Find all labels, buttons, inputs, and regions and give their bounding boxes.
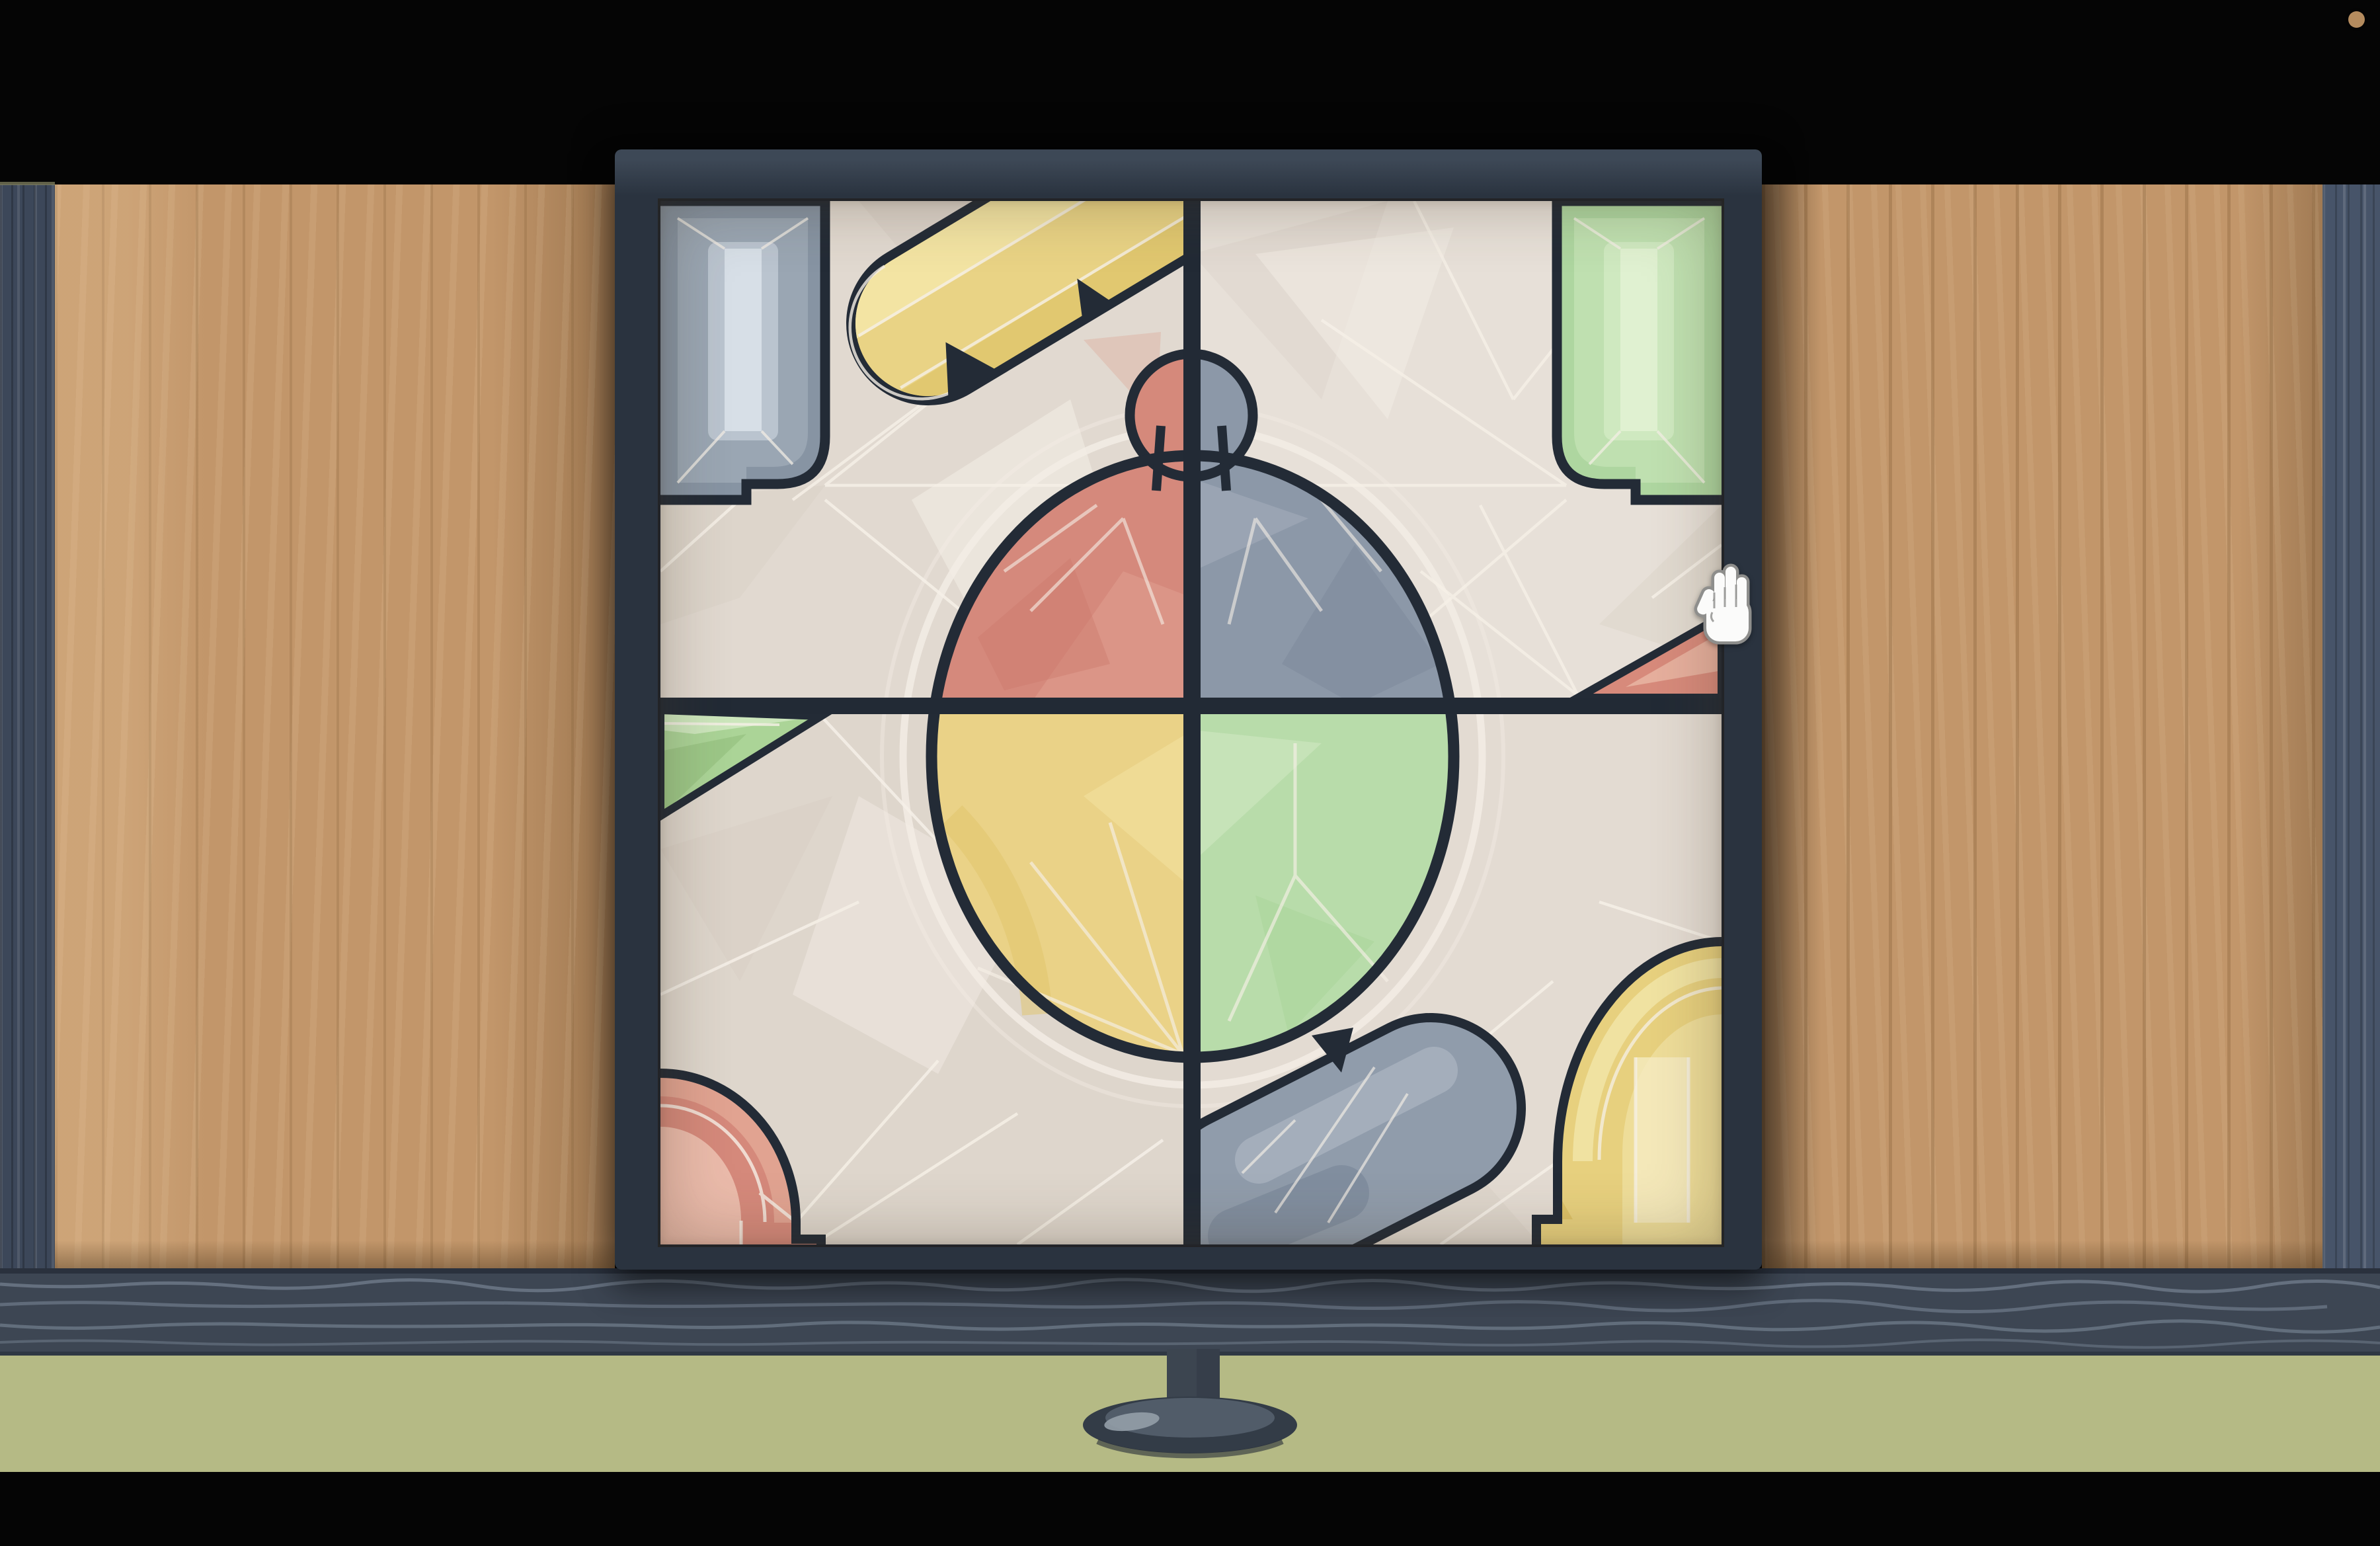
puzzle-board — [658, 198, 1724, 1247]
panel-bottom-left[interactable] — [660, 706, 1191, 1244]
wall-accent-line — [0, 182, 55, 185]
right-wood-door[interactable] — [1762, 184, 2322, 1268]
left-wood-door[interactable] — [55, 184, 615, 1268]
puzzle-pedestal — [1058, 1349, 1322, 1481]
puzzle-frame — [615, 149, 1762, 1270]
table-grain-lines — [0, 1268, 2380, 1356]
left-wall-strip — [0, 184, 55, 1268]
panel-top-right[interactable] — [1191, 201, 1722, 706]
panel-top-left[interactable] — [660, 201, 1191, 706]
game-stage — [0, 0, 2380, 1546]
notification-dot — [2348, 11, 2365, 28]
panel-bottom-right[interactable] — [1191, 706, 1722, 1244]
table-front-edge — [0, 1268, 2380, 1356]
hand-cursor-icon — [1692, 561, 1761, 659]
bottom-letterbox — [0, 1472, 2380, 1546]
right-wall-strip — [2322, 184, 2380, 1268]
